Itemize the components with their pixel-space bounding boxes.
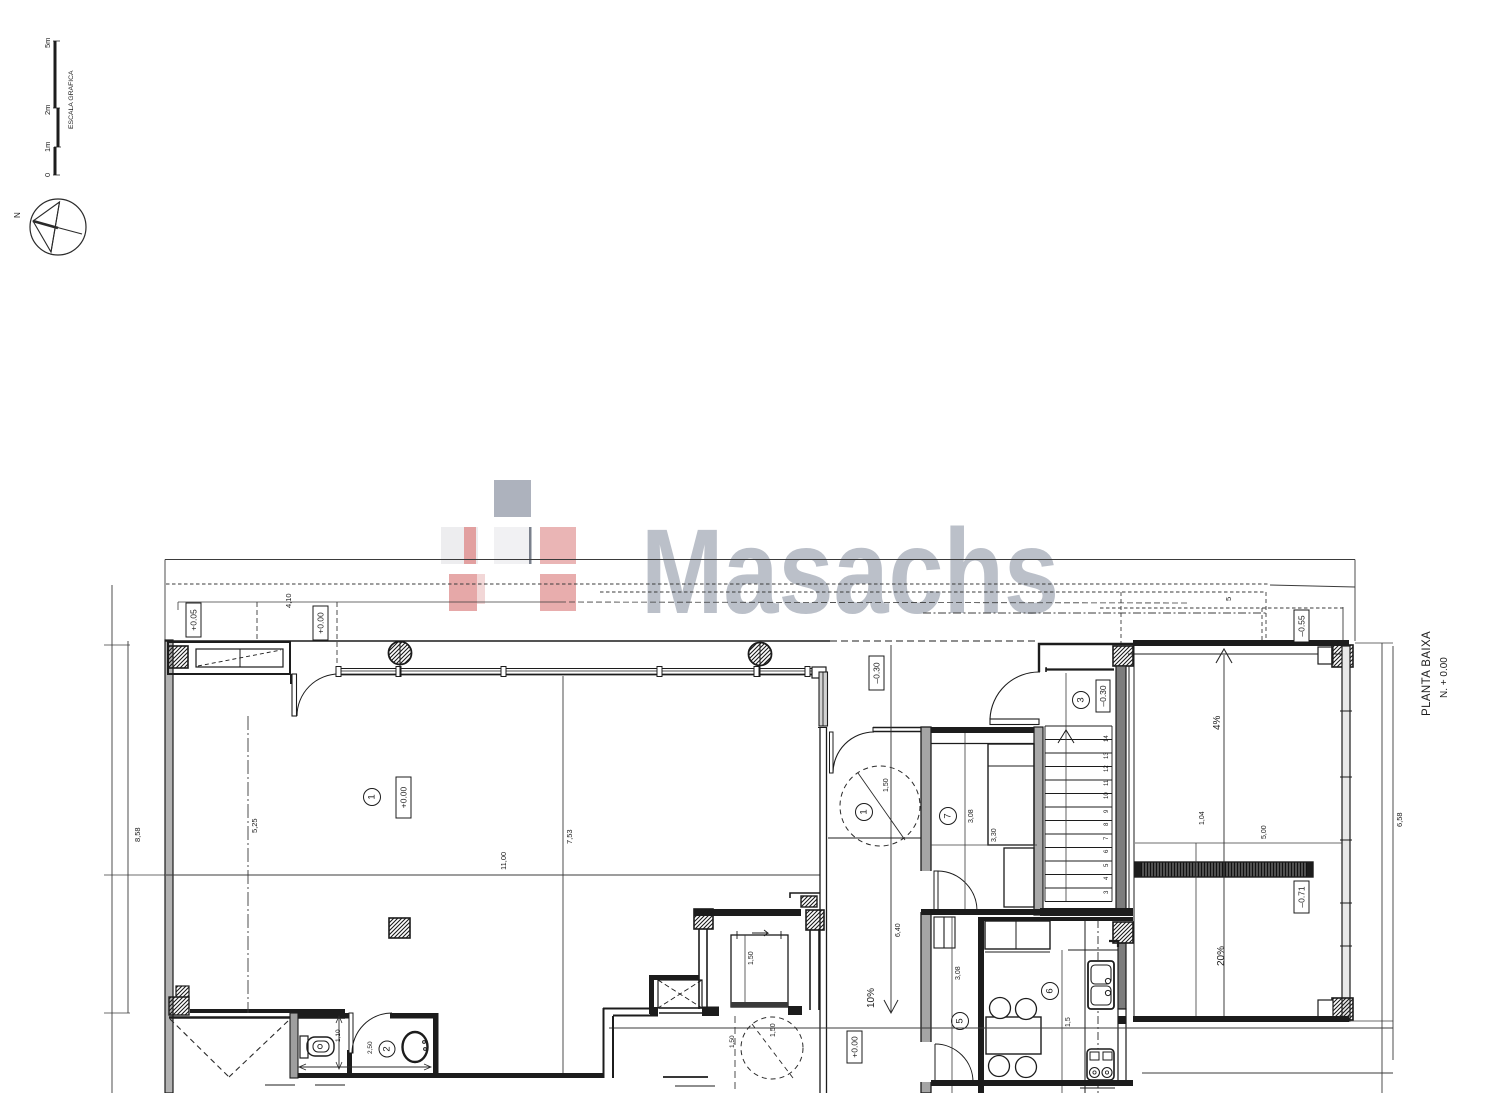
svg-text:10: 10	[1104, 792, 1110, 799]
svg-text:PLANTA BAIXA: PLANTA BAIXA	[1421, 631, 1433, 716]
svg-text:3,08: 3,08	[955, 966, 962, 980]
svg-text:1,50: 1,50	[748, 951, 755, 965]
svg-text:10%: 10%	[866, 988, 877, 1008]
svg-text:N: N	[13, 212, 22, 218]
svg-text:1: 1	[367, 794, 378, 799]
svg-text:12: 12	[1104, 765, 1110, 772]
svg-text:7,53: 7,53	[565, 829, 574, 844]
svg-text:2,50: 2,50	[367, 1041, 374, 1054]
svg-text:1: 1	[859, 809, 870, 814]
svg-text:3: 3	[1076, 697, 1087, 702]
svg-text:1,04: 1,04	[1199, 811, 1206, 825]
svg-text:4,10: 4,10	[284, 593, 293, 608]
svg-text:4%: 4%	[1212, 715, 1223, 730]
svg-text:–0.55: –0.55	[1297, 615, 1307, 637]
svg-text:13: 13	[1104, 752, 1110, 759]
svg-text:+0.00: +0.00	[316, 612, 326, 634]
svg-text:20%: 20%	[1216, 946, 1227, 966]
svg-text:6: 6	[1045, 988, 1056, 993]
svg-text:1,50: 1,50	[729, 1035, 736, 1048]
svg-text:5,25: 5,25	[250, 818, 259, 833]
svg-text:8,58: 8,58	[133, 827, 142, 842]
svg-text:ESCALA GRAFICA: ESCALA GRAFICA	[68, 70, 75, 129]
svg-text:3,08: 3,08	[968, 809, 975, 823]
svg-text:11: 11	[1104, 779, 1110, 786]
svg-text:1m: 1m	[43, 142, 52, 152]
svg-text:3,30: 3,30	[991, 828, 998, 842]
svg-text:1,10: 1,10	[335, 1029, 342, 1042]
svg-text:5: 5	[1224, 597, 1233, 601]
svg-text:+0.00: +0.00	[399, 786, 409, 808]
svg-text:1,5: 1,5	[1065, 1017, 1072, 1027]
svg-text:6,58: 6,58	[1395, 812, 1404, 827]
svg-text:1,50: 1,50	[883, 778, 890, 792]
svg-text:2m: 2m	[43, 105, 52, 115]
svg-text:5,00: 5,00	[1261, 825, 1268, 839]
svg-text:–0.30: –0.30	[872, 662, 882, 684]
svg-text:Masachs: Masachs	[641, 503, 1059, 639]
svg-text:+0.00: +0.00	[850, 1036, 860, 1058]
svg-text:0: 0	[43, 173, 52, 177]
svg-text:5: 5	[955, 1018, 966, 1023]
svg-text:2: 2	[382, 1046, 393, 1051]
svg-text:–0.30: –0.30	[1098, 685, 1108, 707]
svg-text:N. + 0.00: N. + 0.00	[1439, 657, 1450, 698]
svg-text:14: 14	[1104, 735, 1110, 742]
svg-text:6,40: 6,40	[895, 923, 902, 937]
svg-text:5m: 5m	[43, 38, 52, 48]
svg-text:11,00: 11,00	[499, 852, 508, 870]
svg-text:+0.05: +0.05	[189, 609, 199, 631]
svg-text:–0.71: –0.71	[1297, 886, 1307, 908]
svg-text:1,50: 1,50	[770, 1023, 777, 1037]
svg-text:7: 7	[943, 813, 954, 818]
